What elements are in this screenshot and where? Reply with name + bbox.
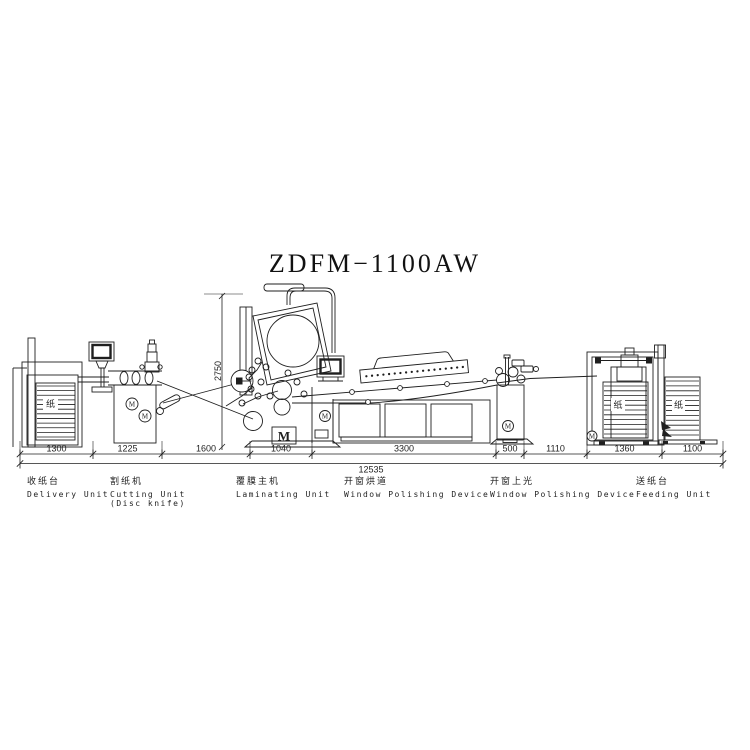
dim-1300: 1300	[46, 444, 66, 454]
label-cn: 开窗上光	[490, 474, 635, 487]
heater-bar	[359, 350, 469, 383]
feeding-unit-drawing	[587, 348, 658, 445]
label-sub: (Disc knife)	[110, 499, 186, 508]
label-cn: 覆膜主机	[236, 474, 331, 487]
dim-1100: 1100	[683, 444, 702, 454]
label-en: Window Polishing Device	[490, 490, 635, 499]
label-window-device-1: 开窗烘道 Window Polishing Device	[344, 474, 489, 499]
dim-1225: 1225	[117, 444, 137, 454]
label-en: Laminating Unit	[236, 490, 331, 499]
label-en: Window Polishing Device	[344, 490, 489, 499]
label-en: Delivery Unit	[27, 490, 109, 499]
label-cn: 割纸机	[110, 474, 186, 487]
motor-label: M	[322, 413, 329, 421]
label-cn: 送纸台	[636, 474, 712, 487]
label-window-device-2: 开窗上光 Window Polishing Device	[490, 474, 635, 499]
label-laminating-unit: 覆膜主机 Laminating Unit	[236, 474, 331, 499]
laminating-unit-drawing	[204, 284, 344, 450]
cylinder-arm	[154, 394, 183, 416]
motor-label: M	[505, 423, 512, 431]
label-cutting-unit: 割纸机 Cutting Unit (Disc knife)	[110, 474, 186, 508]
label-cn: 收纸台	[27, 474, 109, 487]
dim-3300: 3300	[394, 444, 414, 454]
main-motor-label: M	[278, 429, 290, 444]
dim-height: 2750	[213, 361, 223, 381]
machine-diagram-page: ZDFM−1100AW	[0, 0, 750, 750]
paper-stack-lines	[37, 381, 699, 437]
label-cn: 开窗烘道	[344, 474, 489, 487]
dim-total: 12535	[358, 465, 383, 475]
motor-label: M	[142, 413, 149, 421]
dim-500: 500	[502, 444, 517, 454]
label-feeding-unit: 送纸台 Feeding Unit	[636, 474, 712, 499]
label-en: Feeding Unit	[636, 490, 712, 499]
motor-label: M	[129, 401, 136, 409]
polishing-unit-drawing	[491, 355, 597, 444]
label-delivery-unit: 收纸台 Delivery Unit	[27, 474, 109, 499]
motor-label: M	[589, 433, 596, 441]
label-en: Cutting Unit	[110, 490, 186, 499]
paper-glyph-delivery: 纸	[46, 398, 55, 410]
dim-1040: 1040	[271, 444, 291, 454]
cutting-unit-drawing	[108, 340, 253, 443]
drying-tunnel-drawing	[292, 350, 497, 443]
machine-line-drawing: 纸 纸 纸 M M M M M M 1300 1225 1600 1040 33…	[0, 0, 750, 750]
dim-1600: 1600	[196, 444, 216, 454]
paper-glyph-feeding: 纸	[613, 399, 622, 411]
paper-glyph-stack: 纸	[674, 399, 683, 411]
delivery-unit-drawing	[13, 338, 109, 447]
dim-1360: 1360	[614, 444, 634, 454]
dim-1110: 1110	[546, 444, 565, 454]
control-monitor-left	[89, 342, 114, 392]
